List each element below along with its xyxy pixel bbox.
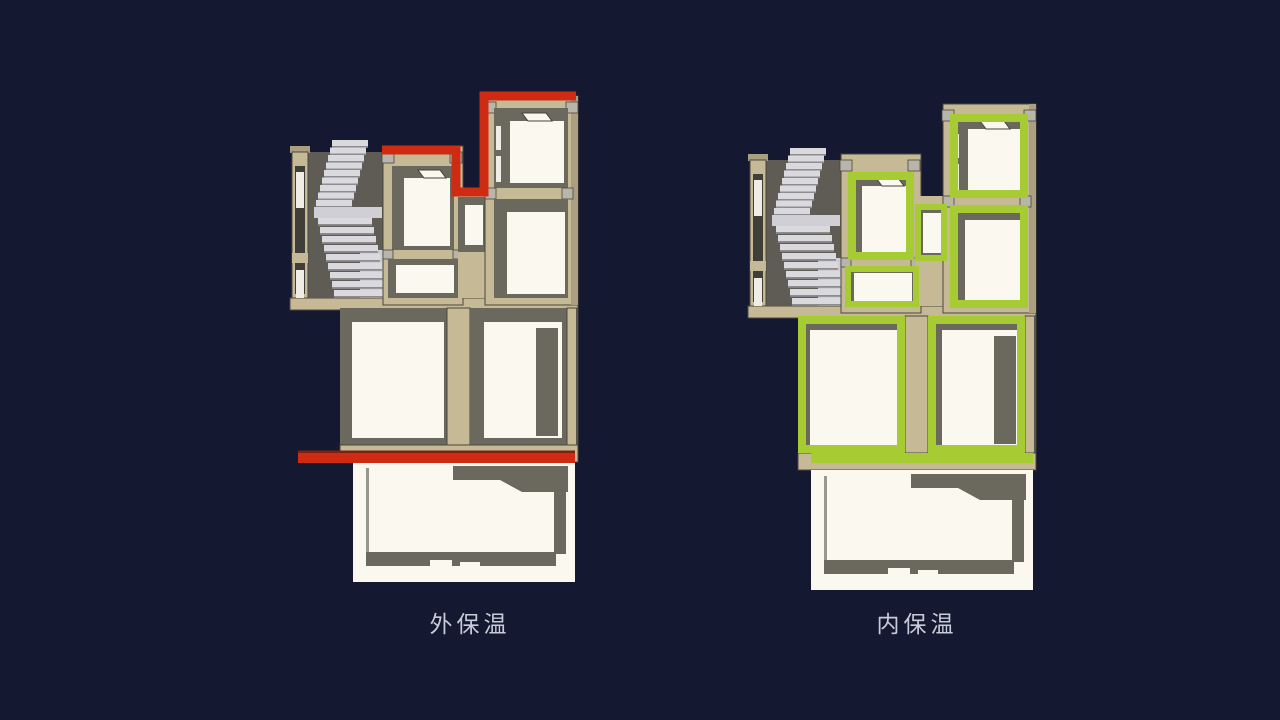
- building-section-external: [290, 96, 578, 582]
- insulation-comparison-drawing: [0, 0, 1280, 720]
- label-external-insulation: 外保温: [400, 605, 540, 639]
- insulation-floor-band: [298, 452, 575, 463]
- label-internal-insulation: 内保温: [847, 605, 987, 639]
- building-section-internal: [748, 104, 1036, 590]
- insulation-floor-band: [811, 453, 1033, 463]
- slide: 外保温 内保温: [0, 0, 1280, 720]
